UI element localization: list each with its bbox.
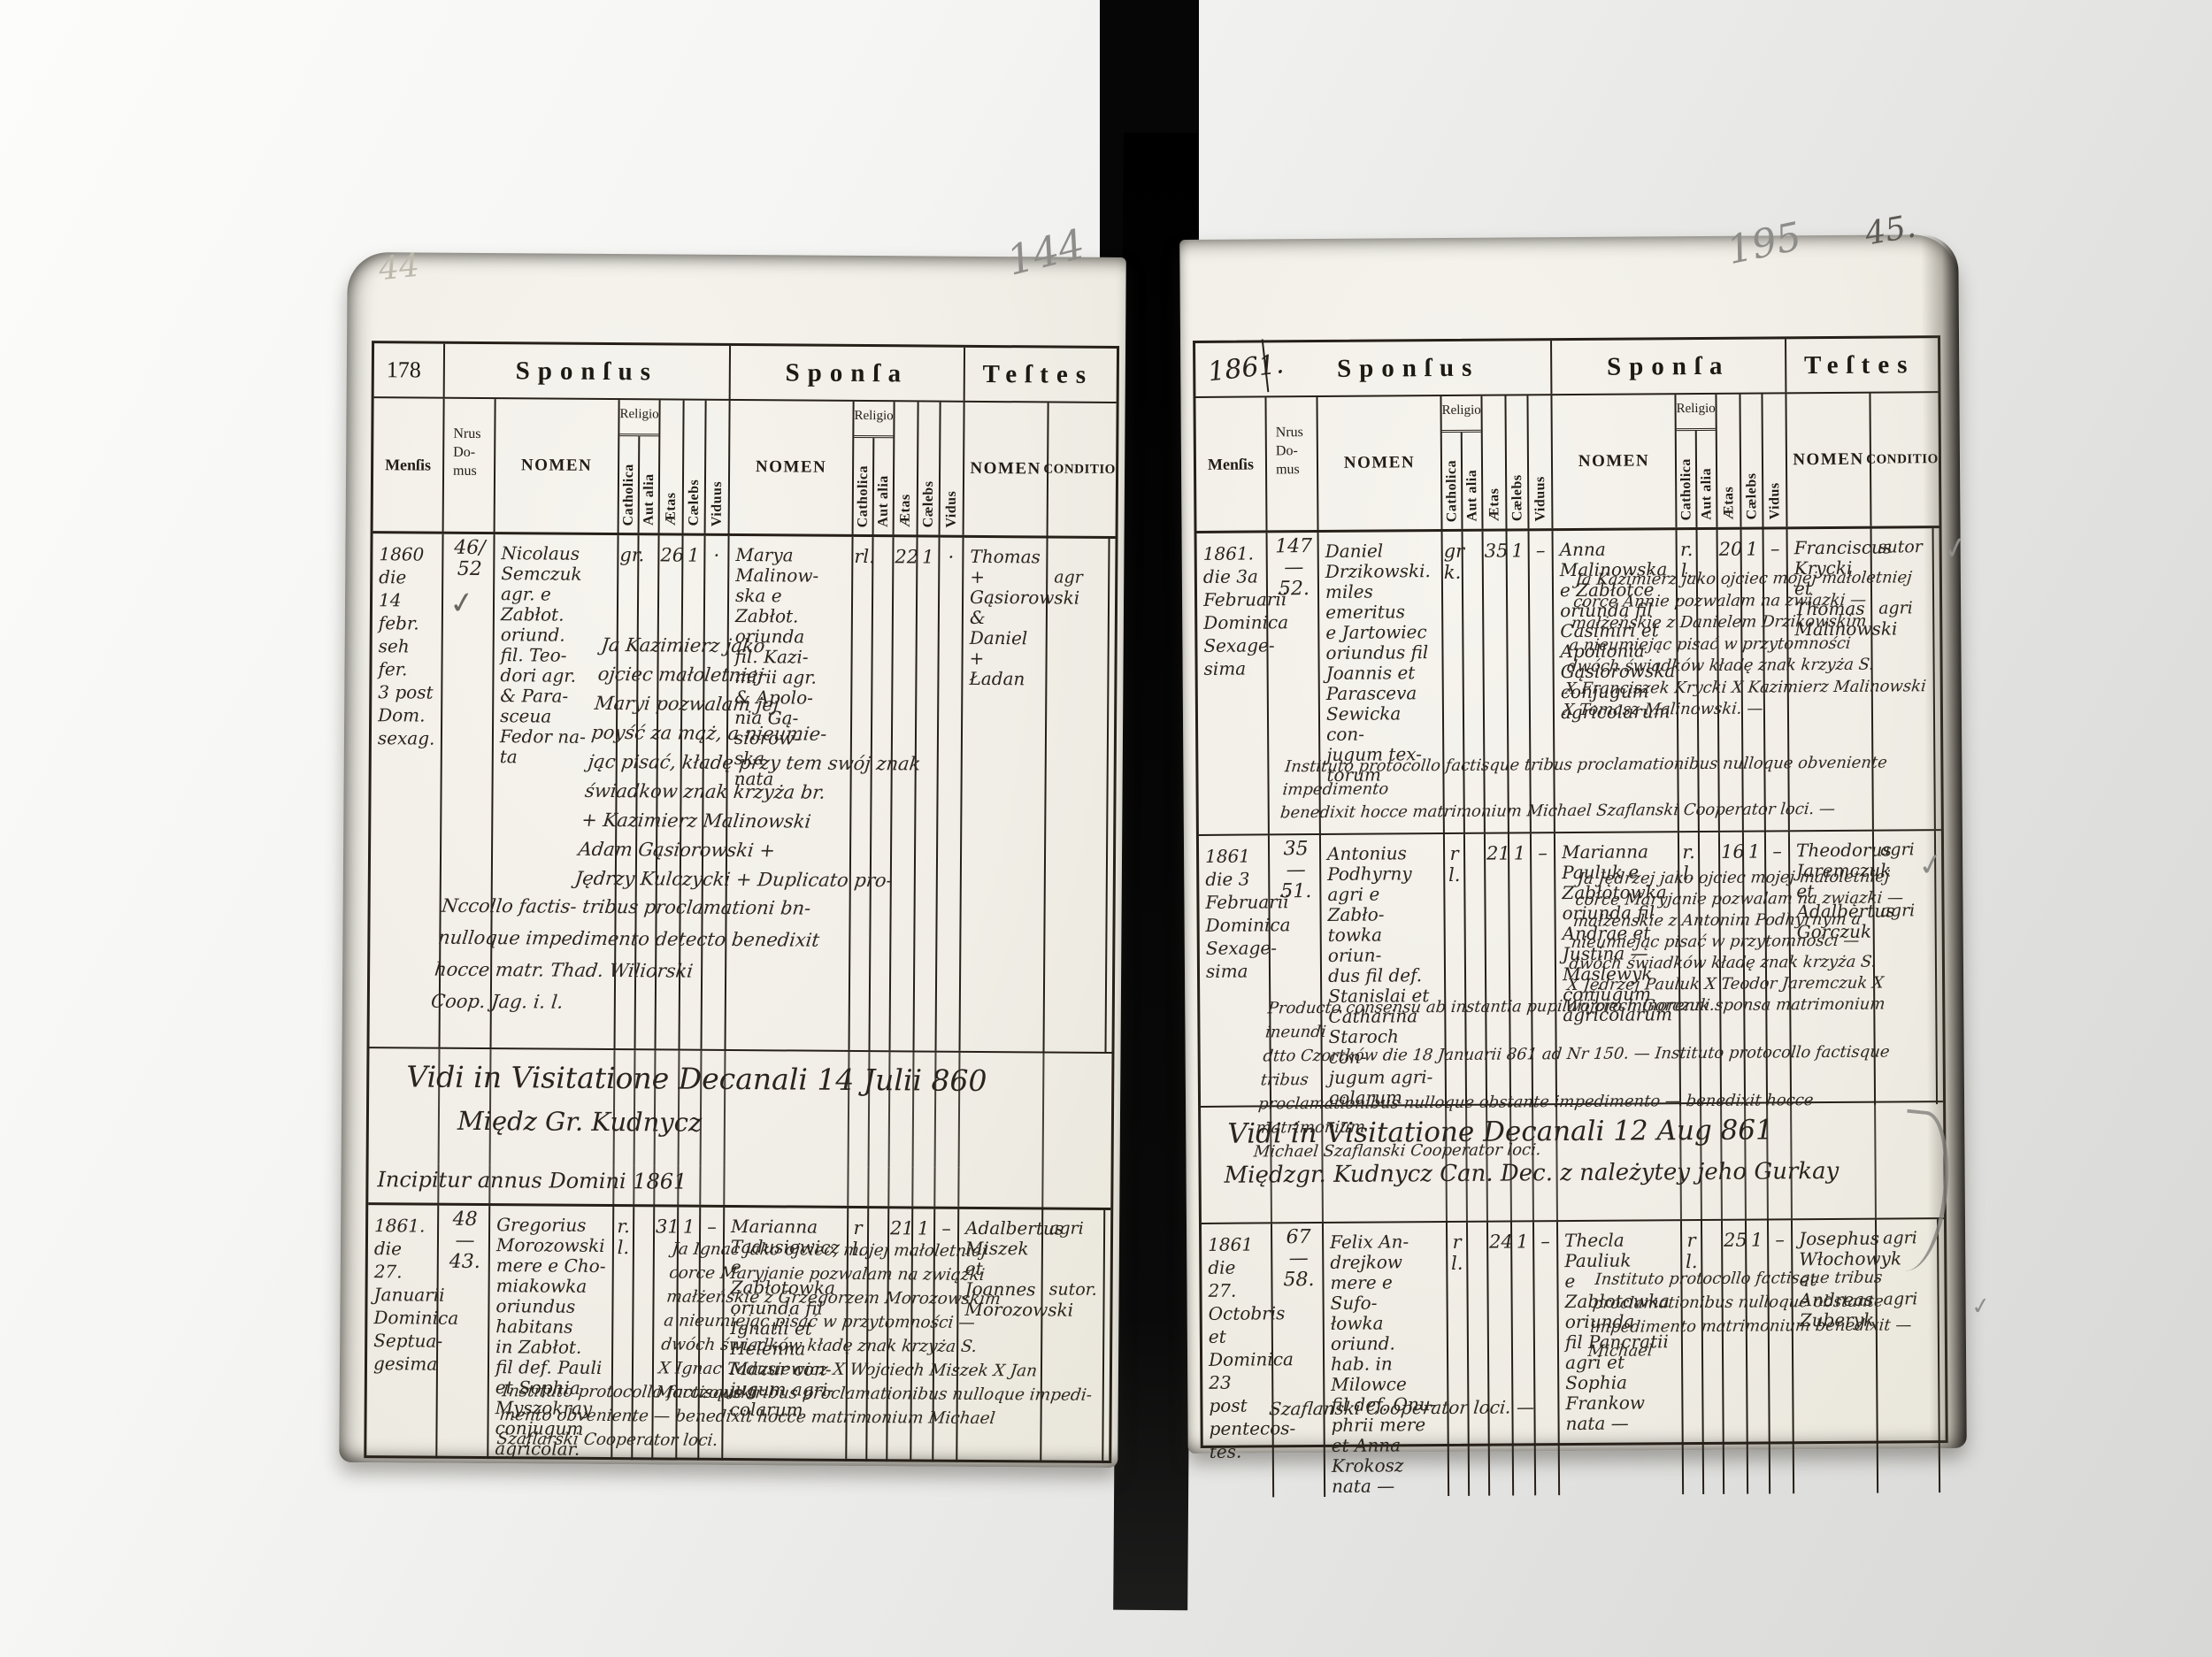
religio-label: Religio — [1676, 395, 1715, 431]
right-register-table: 1861. Sponſus Sponſa Teſtes Menſis Nrus … — [1193, 335, 1948, 1448]
consent-note: Ja Kazimierz jako ojciec mojej małoletni… — [1562, 567, 1939, 721]
col-header-sponsa-vidus: Vidus — [941, 403, 965, 535]
pencil-folio-number-faint: 44 — [377, 248, 421, 288]
handwritten-year: 1861. — [1193, 339, 1269, 400]
sponsus-religio-cell: r l. — [1448, 1223, 1470, 1496]
mensis-cell: 1861 die 3 Februarii Dominica Sexage- si… — [1199, 835, 1271, 1109]
mensis-cell: 1861. die 3a Februarii Dominica Sexage- … — [1197, 533, 1270, 834]
visitation-row: Vidi in Visitatione Decanali 14 Julii 86… — [369, 1047, 1112, 1169]
col-header-sponsus-nomen: NOMEN — [1317, 396, 1442, 530]
sponsus-aetas-cell: 24 — [1488, 1222, 1514, 1495]
header-testes: Teſtes — [965, 348, 1111, 402]
col-header-sponsa-religio: Religio Catholica Aut alia — [854, 402, 895, 534]
col-header-sponsa-aetas: Ætas — [1717, 395, 1741, 527]
checkmark-icon: ✓ — [447, 584, 477, 623]
aut-alia-label: Aut alia — [875, 475, 891, 527]
left-page-scan: 178 Sponſus Sponſa Teſtes Menſis Nrus Do… — [339, 252, 1126, 1468]
col-header-mensis: Menſis — [1195, 397, 1267, 531]
col-header-testes-nomen: NOMEN — [964, 403, 1049, 536]
header-sponsa: Sponſa — [731, 346, 965, 401]
catholica-label: Catholica — [855, 465, 871, 527]
printed-page-number: 178 — [374, 343, 445, 397]
aut-alia-label: Aut alia — [641, 474, 657, 526]
header-sponsus: Sponſus — [1266, 341, 1552, 395]
left-register-table: 178 Sponſus Sponſa Teſtes Menſis Nrus Do… — [364, 341, 1119, 1463]
benediction-note: Nccollo factis- tribus proclamationi bn-… — [429, 890, 1089, 1022]
col-header-conditio: CONDITIO — [1048, 403, 1111, 535]
register-scan-scene: 178 Sponſus Sponſa Teſtes Menſis Nrus Do… — [0, 0, 2212, 1657]
right-header-row-columns: Menſis Nrus Do- mus NOMEN Religio Cathol… — [1195, 393, 1939, 533]
house-number-cell: 67 — 58. — [1272, 1224, 1325, 1497]
col-header-sponsa-religio: Religio Catholica Aut alia — [1676, 395, 1717, 527]
left-header-row-columns: Menſis Nrus Do- mus NOMEN Religio Cathol… — [373, 398, 1117, 539]
header-sponsa: Sponſa — [1552, 339, 1786, 394]
right-page-scan: 1861. Sponſus Sponſa Teſtes Menſis Nrus … — [1179, 234, 1967, 1454]
col-header-house-number: Nrus Do- mus — [444, 399, 496, 532]
aut-alia-label: Aut alia — [1464, 470, 1480, 522]
col-header-testes-nomen: NOMEN — [1786, 394, 1871, 527]
col-header-sponsus-nomen: NOMEN — [495, 399, 620, 533]
col-header-sponsus-viduus: Viduus — [1528, 395, 1553, 528]
col-header-mensis: Menſis — [373, 398, 445, 532]
sponsus-religio-alia-cell — [1468, 1223, 1490, 1496]
benediction-note: Instituto protocollo factisque tribus pr… — [1279, 751, 1937, 825]
sponsus-viduus-cell: – — [1534, 1222, 1560, 1495]
col-header-sponsus-religio: Religio Catholica Aut alia — [1441, 396, 1483, 529]
col-header-sponsa-vidus: Vidus — [1763, 394, 1787, 526]
col-header-sponsa-caelebs: Cælebs — [1740, 394, 1763, 526]
col-header-sponsus-caelebs: Cælebs — [1506, 395, 1529, 528]
consent-note: Ja Kazimierz jako ojciec małoletniej Mar… — [573, 631, 1111, 897]
col-header-sponsus-aetas: Ætas — [660, 400, 685, 533]
religio-label: Religio — [854, 402, 893, 438]
checkmark-icon: ✓ — [1970, 1293, 1993, 1322]
religio-label: Religio — [1441, 396, 1480, 433]
aut-alia-label: Aut alia — [1699, 468, 1715, 520]
col-header-sponsa-aetas: Ætas — [895, 402, 919, 534]
left-header-row-groups: 178 Sponſus Sponſa Teſtes — [374, 343, 1117, 403]
benediction-note: Instituto protocollo factisque tribus pr… — [1586, 1265, 1937, 1363]
col-header-sponsus-viduus: Viduus — [706, 401, 731, 533]
benediction-note: Producto consensu ab instantia pupilari … — [1253, 992, 1933, 1163]
benediction-note: Instituto protocollo factisque tribus pr… — [495, 1379, 1096, 1455]
mensis-cell: 1861 die 27. Octobris et Dominica 23 pos… — [1202, 1224, 1274, 1498]
catholica-label: Catholica — [1443, 460, 1459, 522]
sponsus-name-cell: Felix An- drejkow mere e Sufo- łowka ori… — [1324, 1223, 1449, 1497]
sponsus-caelebs-cell: 1 — [1512, 1222, 1536, 1495]
visitation-signature: Międz Gr. Kudnycz — [457, 1106, 703, 1138]
col-header-house-number: Nrus Do- mus — [1266, 397, 1318, 530]
house-number-cell: 48 — 43. — [437, 1206, 490, 1459]
col-header-sponsus-aetas: Ætas — [1482, 396, 1507, 529]
mensis-cell: 1861. die 27. Januarii Dominica Septua- … — [366, 1205, 439, 1459]
catholica-label: Catholica — [1678, 458, 1694, 520]
incipitur-note: Incipitur annus Domini 1861 — [377, 1167, 687, 1193]
table-row: 1860 die 14 febr. seh fer. 3 post Dom. s… — [370, 533, 1116, 1052]
header-sponsus: Sponſus — [445, 344, 731, 399]
table-row: 1861. die 3a Februarii Dominica Sexage- … — [1197, 528, 1941, 834]
col-header-sponsus-religio: Religio Catholica Aut alia — [619, 400, 661, 533]
table-row: 1861 die 3 Februarii Dominica Sexage- si… — [1199, 829, 1943, 1106]
catholica-label: Catholica — [620, 464, 636, 525]
mensis-cell: 1860 die 14 febr. seh fer. 3 post Dom. s… — [370, 533, 444, 1047]
table-row: 1861. die 27. Januarii Dominica Septua- … — [366, 1202, 1110, 1461]
col-header-sponsa-nomen: NOMEN — [730, 401, 855, 534]
signature-note: Szaflanski Cooperator loci. — — [1268, 1394, 1651, 1420]
col-header-sponsa-nomen: NOMEN — [1552, 395, 1677, 528]
header-testes: Teſtes — [1786, 338, 1932, 392]
religio-label: Religio — [619, 400, 658, 436]
incipitur-row: Incipitur annus Domini 1861 — [368, 1163, 1110, 1208]
visitation-note: Vidi in Visitatione Decanali 14 Julii 86… — [406, 1059, 987, 1098]
col-header-sponsus-caelebs: Cælebs — [684, 401, 707, 533]
col-header-sponsa-caelebs: Cælebs — [918, 402, 941, 534]
right-header-row-groups: 1861. Sponſus Sponſa Teſtes — [1195, 338, 1938, 398]
table-row: 1861 die 27. Octobris et Dominica 23 pos… — [1202, 1217, 1946, 1446]
